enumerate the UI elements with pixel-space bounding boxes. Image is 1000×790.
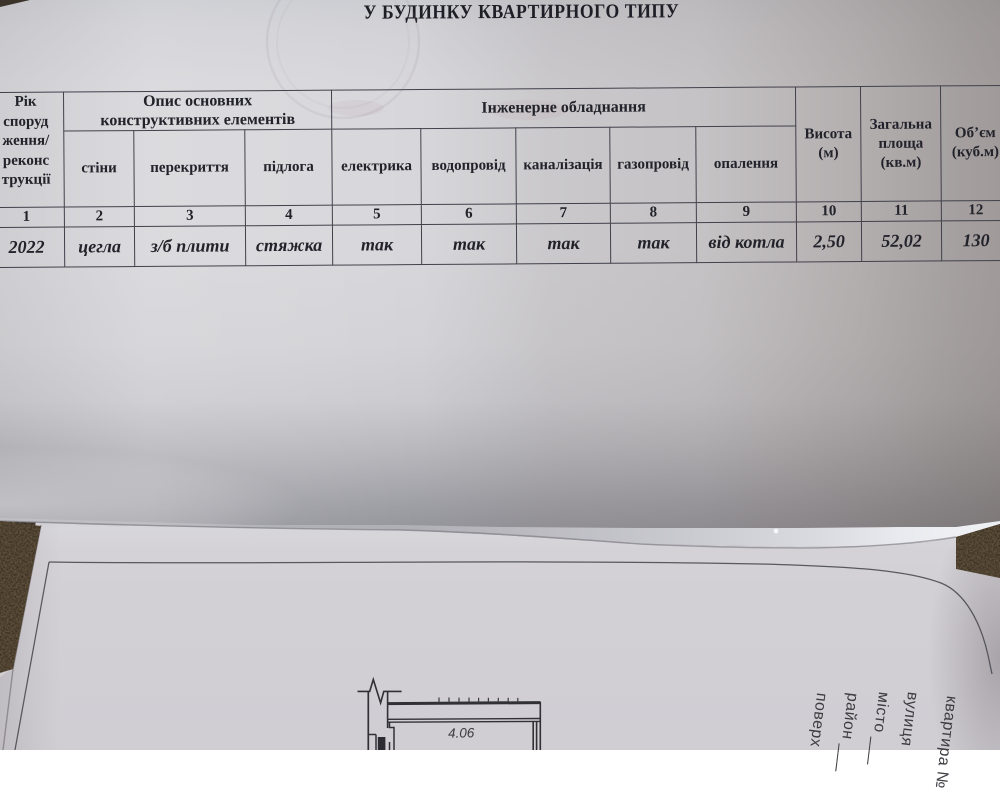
svg-text:4.06: 4.06 [448, 725, 475, 740]
